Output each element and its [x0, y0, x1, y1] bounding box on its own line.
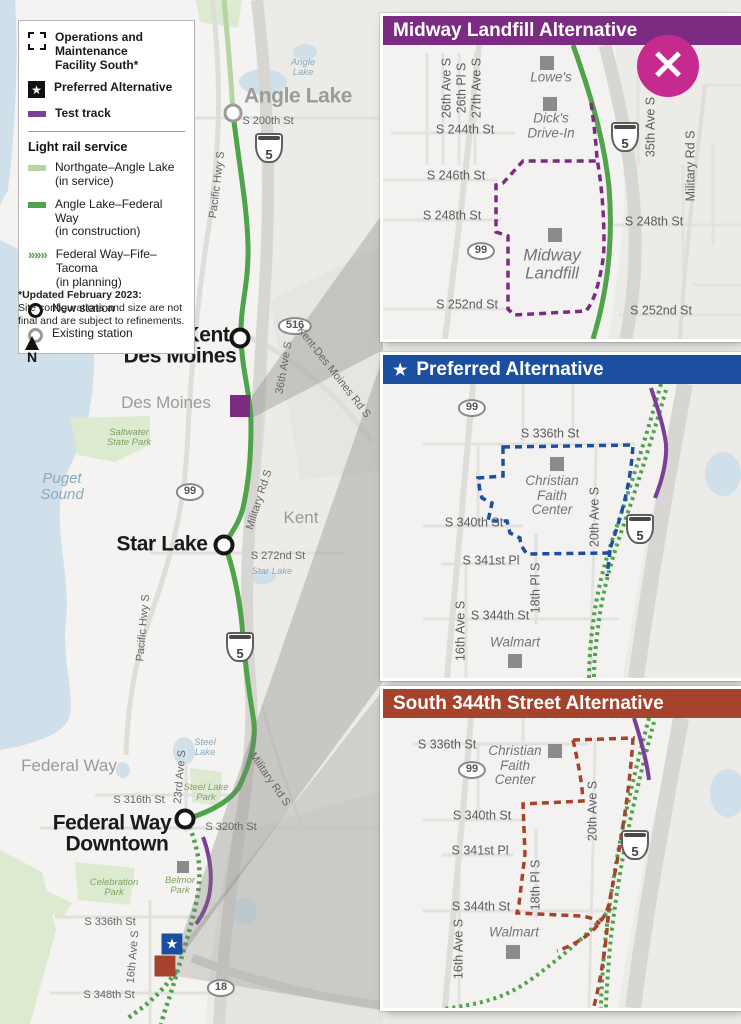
sr18-shield: 18 — [207, 979, 235, 997]
legend-service-in-planning: Federal Way–Fife–Tacoma (in planning) — [56, 248, 185, 289]
existing-station-marker-angle-lake — [224, 104, 243, 123]
landmark-label-lowes: Lowe's — [530, 71, 572, 86]
street-label-16th-ave-s: 16th Ave S — [454, 601, 468, 661]
new-station-marker-kent-des-moines — [230, 328, 251, 349]
legend-service-in-construction: Angle Lake–Federal Way (in construction) — [55, 198, 185, 239]
i5-shield: 5 — [626, 514, 654, 544]
landmark-label-walmart: Walmart — [490, 636, 540, 651]
legend-test-track-label: Test track — [55, 107, 111, 121]
park-label-belmor-park: Belmor Park — [165, 876, 195, 897]
street-label-s-200th-st: S 200th St — [242, 116, 293, 128]
map-note: *Updated February 2023: Site configurati… — [18, 289, 198, 328]
panel-s344-map: S 336th StChristian Faith Center99S 340t… — [383, 718, 741, 1008]
station-label-angle-lake: Angle Lake — [244, 86, 352, 109]
street-label-27th-ave-s: 27th Ave S — [470, 58, 484, 118]
panel-south-344th-street-alternative: South 344th Street Alternative — [383, 689, 741, 1008]
park-label-celebration-park: Celebration Park — [90, 878, 139, 899]
landmark-label-christian-faith-center: Christian Faith Center — [488, 744, 541, 788]
star-icon: ★ — [393, 360, 407, 380]
panel-s344-labels: S 336th StChristian Faith Center99S 340t… — [383, 718, 741, 1008]
new-station-marker-federal-way-downtown — [175, 809, 196, 830]
legend-divider — [28, 131, 185, 132]
panel-preferred-map: 99S 336th StChristian Faith Center20th A… — [383, 384, 741, 678]
street-label-s-244th-st: S 244th St — [436, 123, 494, 137]
street-label-military-rd-s: Military Rd S — [245, 469, 276, 532]
test-track-icon — [28, 111, 46, 117]
city-label-kent: Kent — [284, 509, 319, 527]
street-label-20th-ave-s: 20th Ave S — [588, 487, 602, 547]
street-label-s-272nd-st: S 272nd St — [251, 551, 305, 563]
christian-faith-center-building-marker — [550, 457, 564, 471]
midway-landfill-site-marker — [230, 395, 250, 417]
landmark-label-christian-faith-center: Christian Faith Center — [525, 474, 578, 518]
panel-preferred-alternative: ★ Preferred Alternative — [383, 355, 741, 678]
street-label-military-rd-s: Military Rd S — [246, 751, 291, 809]
street-label-16th-ave-s: 16th Ave S — [452, 919, 466, 979]
street-label-s-341st-pl: S 341st Pl — [452, 844, 509, 858]
street-label-military-rd-s: Military Rd S — [684, 131, 698, 202]
i5-shield: 5 — [611, 122, 639, 152]
midway-landfill-building-marker — [548, 228, 562, 242]
street-label-s-248th-st: S 248th St — [625, 215, 683, 229]
belmor-park-building-marker — [177, 861, 189, 873]
street-label-s-252nd-st: S 252nd St — [436, 298, 498, 312]
sr99-shield: 99 — [467, 242, 495, 260]
lake-label-star-lake: Star Lake — [252, 567, 293, 577]
christian-faith-center-building-marker — [548, 744, 562, 758]
street-label-36th-ave-s: 36th Ave S — [275, 341, 296, 395]
lowes-building-marker — [540, 56, 554, 70]
omf-area-icon — [28, 32, 46, 50]
walmart-building-marker — [508, 654, 522, 668]
sr99-shield: 99 — [458, 399, 486, 417]
lake-label-angle-lake: Angle Lake — [291, 58, 315, 79]
new-station-marker-star-lake — [214, 535, 235, 556]
note-title: *Updated February 2023: — [18, 289, 142, 301]
dicks-drive-in-building-marker — [543, 97, 557, 111]
street-label-s-320th-st: S 320th St — [205, 822, 256, 834]
preferred-site-marker: ★ — [162, 934, 183, 955]
panel-preferred-header: ★ Preferred Alternative — [383, 355, 741, 384]
street-label-s-348th-st: S 348th St — [83, 990, 134, 1002]
walmart-building-marker — [506, 945, 520, 959]
street-label-pacific-hwy-s: Pacific Hwy S — [135, 594, 153, 662]
panel-preferred-title: Preferred Alternative — [416, 359, 603, 381]
preferred-alternative-icon: ★ — [28, 81, 45, 98]
legend-preferred-label: Preferred Alternative — [54, 81, 172, 95]
sr99-shield: 99 — [458, 761, 486, 779]
park-label-saltwater-state-park: Saltwater State Park — [107, 428, 151, 449]
i5-shield: 5 — [621, 830, 649, 860]
close-icon: × — [650, 42, 687, 86]
panel-preferred-labels: 99S 336th StChristian Faith Center20th A… — [383, 384, 741, 678]
street-label-s-340th-st: S 340th St — [445, 516, 503, 530]
landmark-label-midway-landfill: Midway Landfill — [523, 247, 581, 284]
city-label-des-moines: Des Moines — [121, 394, 211, 412]
north-arrow: N — [24, 336, 40, 365]
line-in-service-icon — [28, 165, 46, 171]
street-label-20th-ave-s: 20th Ave S — [586, 781, 600, 841]
north-arrow-icon — [25, 336, 39, 350]
street-label-kent-des-moines-rd-s: Kent-Des Moines Rd S — [294, 325, 372, 420]
street-label-s-341st-pl: S 341st Pl — [463, 554, 520, 568]
north-label: N — [24, 350, 40, 365]
i5-shield: 5 — [255, 133, 283, 163]
street-label-16th-ave-s: 16th Ave S — [126, 930, 142, 984]
sr99-shield: 99 — [176, 483, 204, 501]
s344-site-marker — [155, 956, 176, 977]
street-label-s-336th-st: S 336th St — [418, 738, 476, 752]
street-label-26th-ave-s: 26th Ave S — [440, 58, 454, 118]
panel-s344-header: South 344th Street Alternative — [383, 689, 741, 718]
legend-omf-label: Operations and Maintenance Facility Sout… — [55, 31, 143, 72]
close-button[interactable]: × — [637, 35, 699, 97]
street-label-s-344th-st: S 344th St — [471, 609, 529, 623]
city-label-federal-way: Federal Way — [21, 757, 117, 775]
legend-section-title: Light rail service — [28, 140, 185, 154]
note-body: Site configurations and size are not fin… — [18, 302, 198, 328]
street-label-s-316th-st: S 316th St — [113, 795, 164, 807]
legend-existing-station-label: Existing station — [52, 327, 133, 341]
panel-midway-header: Midway Landfill Alternative — [383, 16, 741, 45]
street-label-s-246th-st: S 246th St — [427, 169, 485, 183]
street-label-s-336th-st: S 336th St — [84, 917, 135, 929]
panel-midway-title: Midway Landfill Alternative — [393, 20, 637, 42]
street-label-s-340th-st: S 340th St — [453, 809, 511, 823]
station-label-downtown: Downtown — [66, 834, 169, 857]
water-label-puget-sound: Puget Sound — [40, 471, 83, 503]
lake-label-steel-lake: Steel Lake — [194, 738, 216, 759]
panel-midway-landfill-alternative: Midway Landfill Alternative 26th Ave S26… — [383, 16, 741, 339]
street-label-pacific-hwy-s: Pacific Hwy S — [208, 151, 228, 219]
street-label-35th-ave-s: 35th Ave S — [644, 97, 658, 157]
street-label-s-248th-st: S 248th St — [423, 209, 481, 223]
line-in-planning-icon: »»» — [28, 247, 47, 262]
park-label-steel-lake-park: Steel Lake Park — [184, 783, 229, 804]
street-label-18th-pl-s: 18th Pl S — [529, 860, 543, 911]
street-label-s-336th-st: S 336th St — [521, 427, 579, 441]
panel-s344-title: South 344th Street Alternative — [393, 693, 664, 715]
landmark-label-dicks-drive-in: Dick's Drive-In — [527, 111, 574, 140]
landmark-label-walmart: Walmart — [489, 926, 539, 941]
legend-service-in-service: Northgate–Angle Lake (in service) — [55, 161, 174, 189]
street-label-s-252nd-st: S 252nd St — [630, 304, 692, 318]
map-canvas: Angle LakeS 200th StAngle LakePacific Hw… — [0, 0, 741, 1024]
street-label-26th-pl-s: 26th Pl S — [455, 63, 469, 114]
station-label-star-lake: Star Lake — [117, 534, 208, 557]
street-label-s-344th-st: S 344th St — [452, 900, 510, 914]
i5-shield: 5 — [226, 632, 254, 662]
line-in-construction-icon — [28, 202, 46, 208]
street-label-18th-pl-s: 18th Pl S — [529, 563, 543, 614]
